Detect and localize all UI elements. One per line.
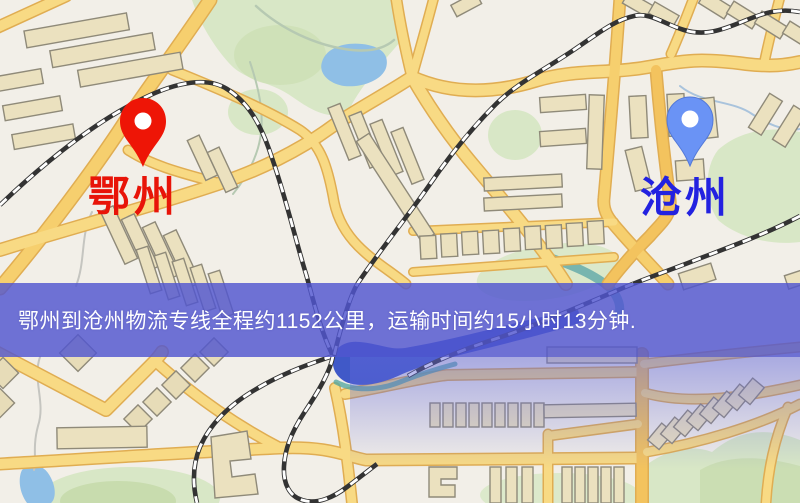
route-info-banner: 鄂州到沧州物流专线全程约1152公里，运输时间约15小时13分钟.	[0, 283, 800, 357]
map-canvas[interactable]	[0, 0, 800, 503]
banner-glow-tint	[350, 357, 800, 469]
route-info-text: 鄂州到沧州物流专线全程约1152公里，运输时间约15小时13分钟.	[18, 305, 636, 335]
map-screenshot: 鄂州 沧州 鄂州到沧州物流专线全程约1152公里，运输时间约15小时13分钟.	[0, 0, 800, 503]
